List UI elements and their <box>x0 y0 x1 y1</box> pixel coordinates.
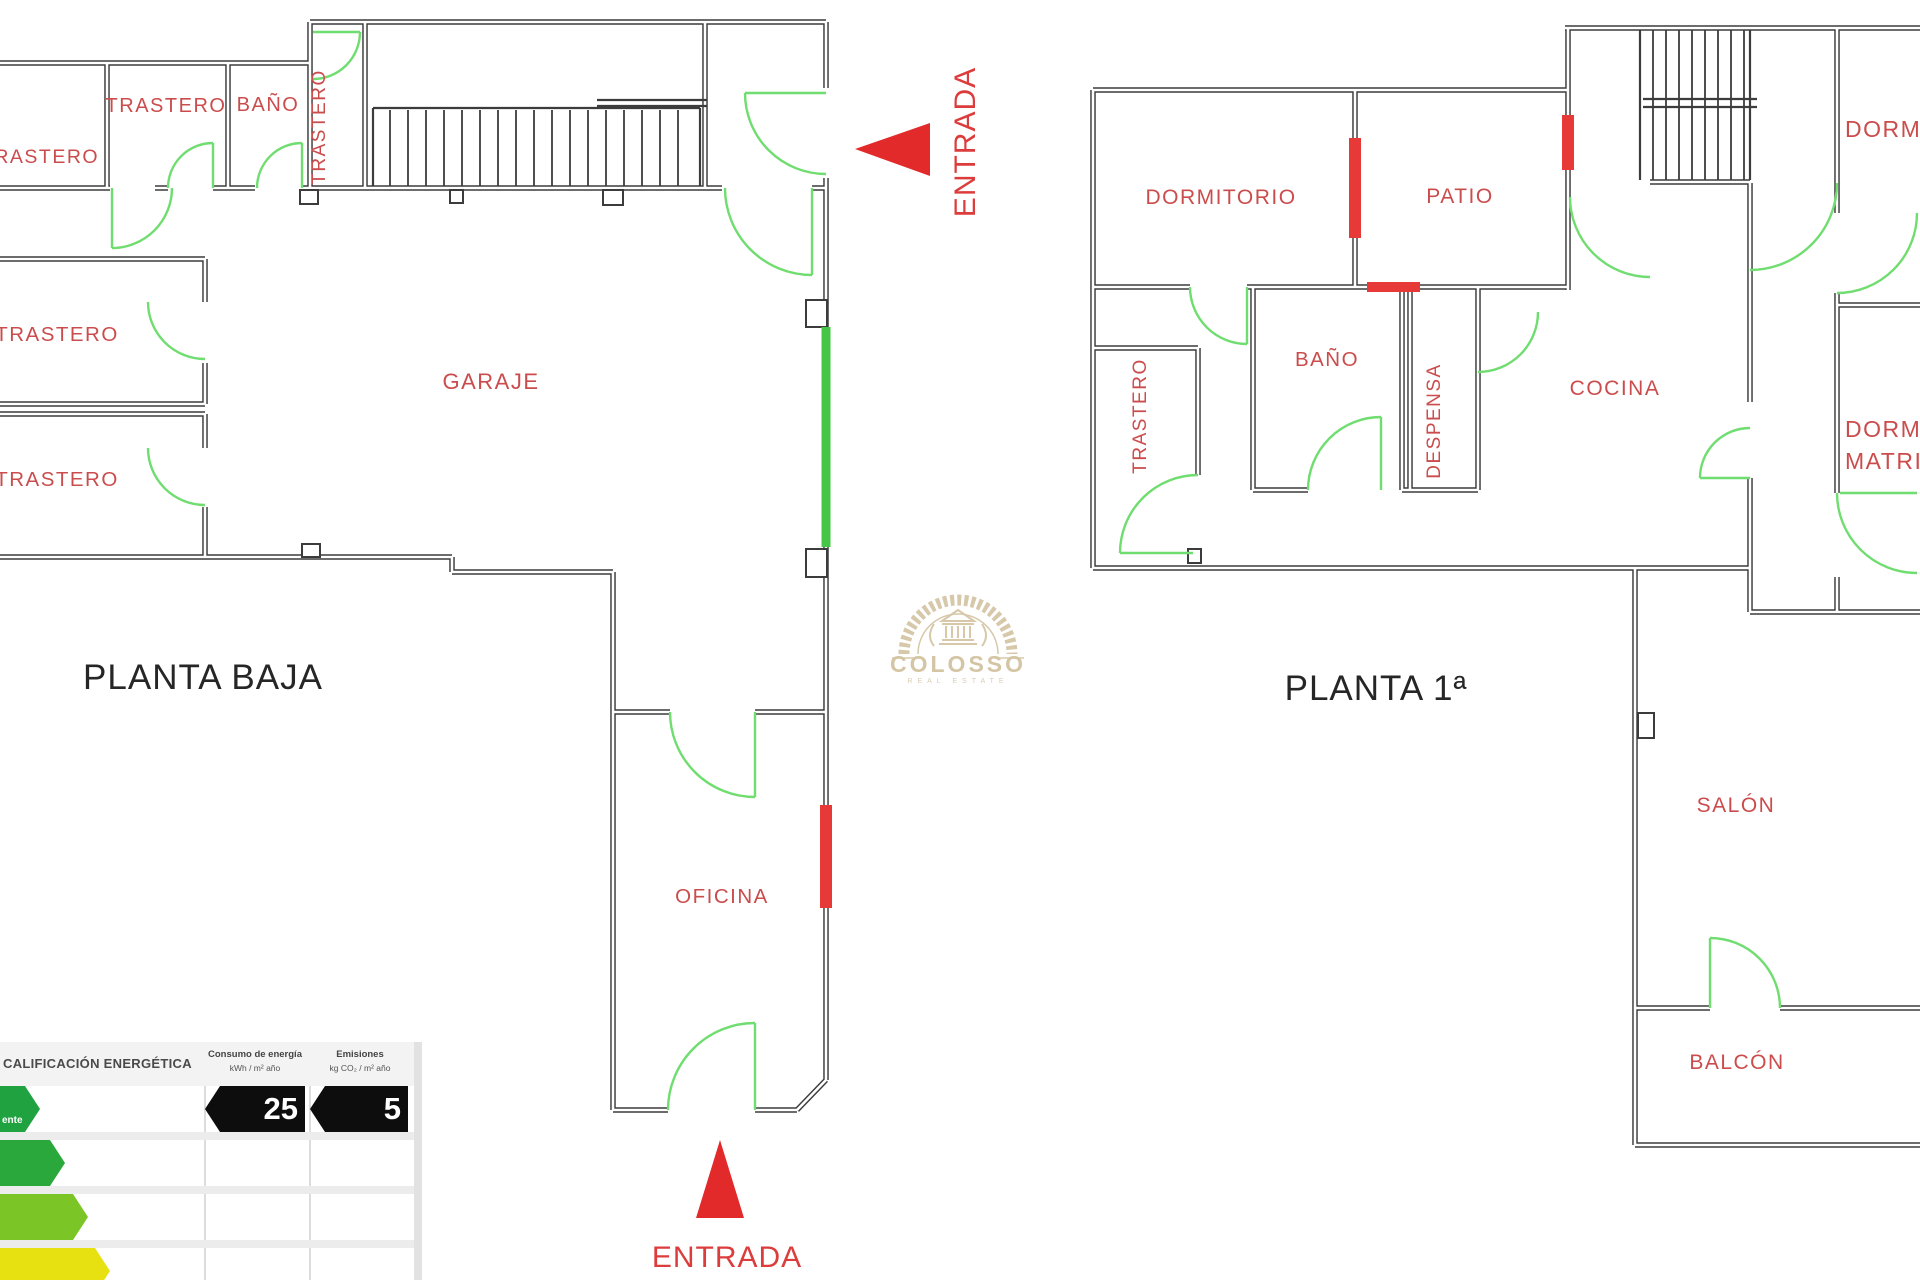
watermark-arch-icon <box>892 600 1024 658</box>
room-label-patio: PATIO <box>1426 185 1493 208</box>
room-label-trastero-mid: TRASTERO <box>0 323 119 346</box>
watermark-tagline: REAL ESTATE <box>907 678 1008 685</box>
room-label-trastero-top: TRASTERO <box>106 95 227 117</box>
energy-row-d <box>0 1248 414 1280</box>
energy-certificate: CALIFICACIÓN ENERGÉTICA Consumo de energ… <box>0 1042 422 1280</box>
room-label-dorm-matri-2: MATRI <box>1845 448 1920 474</box>
energy-emisiones-header-line2: kg CO₂ / m² año <box>308 1062 412 1075</box>
room-label-cocina: COCINA <box>1570 377 1661 400</box>
rating-label-fragment: ente <box>2 1115 23 1126</box>
planta-baja-walls <box>0 22 826 1110</box>
energy-row-c <box>0 1194 414 1240</box>
planta-primera-title: PLANTA 1ª <box>1285 669 1468 708</box>
room-label-bano-pb: BAÑO <box>237 92 300 116</box>
room-label-bano-p1: BAÑO <box>1295 348 1359 371</box>
energy-header: CALIFICACIÓN ENERGÉTICA Consumo de energ… <box>0 1042 414 1086</box>
room-label-dorm-matri-1: DORM <box>1845 416 1920 442</box>
colosso-watermark: COLOSSO REAL ESTATE <box>890 594 1030 686</box>
planta-primera-wall-stubs <box>1188 549 1654 738</box>
room-label-garaje: GARAJE <box>442 369 539 394</box>
energy-emisiones-header: Emisiones kg CO₂ / m² año <box>308 1048 412 1075</box>
energy-title: CALIFICACIÓN ENERGÉTICA <box>3 1056 192 1071</box>
room-label-despensa: DESPENSA <box>1424 363 1445 478</box>
room-label-trastero-vertical: TRASTERO <box>309 69 330 184</box>
room-label-trastero-low: TRASTERO <box>0 468 119 491</box>
room-label-dorm-cut: DORM <box>1845 116 1920 142</box>
energy-row-b <box>0 1140 414 1186</box>
energy-emisiones-header-line1: Emisiones <box>308 1048 412 1062</box>
oficina-window <box>820 805 832 908</box>
planta-primera-doors <box>1120 183 1917 1008</box>
planta-baja-stairs <box>373 100 707 186</box>
planta-primera-stairs <box>1640 30 1757 180</box>
room-label-trastero-p1: TRASTERO <box>1130 358 1151 473</box>
energy-consumo-header-line2: kWh / m² año <box>203 1062 307 1075</box>
rating-arrow-a-icon: ente <box>0 1086 40 1132</box>
entrada-bottom-triangle-icon <box>696 1140 744 1218</box>
energy-right-band <box>414 1042 422 1280</box>
entrada-bottom-label: ENTRADA <box>652 1241 802 1274</box>
energy-consumo-header-line1: Consumo de energía <box>203 1048 307 1062</box>
room-label-oficina: OFICINA <box>675 885 769 908</box>
room-label-balcon: BALCÓN <box>1689 1051 1784 1074</box>
room-label-trastero-top-left: TRASTERO <box>0 146 99 168</box>
rating-arrow-c-icon <box>0 1194 88 1240</box>
emisiones-value-tag: 5 <box>310 1086 408 1132</box>
planta-baja-title: PLANTA BAJA <box>83 658 323 697</box>
energy-row-a: ente 25 5 <box>0 1086 414 1132</box>
rating-arrow-d-icon <box>0 1248 110 1280</box>
consumo-value-tag: 25 <box>205 1086 305 1132</box>
planta-primera-plan: DORMITORIO PATIO BAÑO TRASTERO DESPENSA … <box>1093 28 1920 1145</box>
entrada-right-triangle-icon <box>855 123 930 176</box>
rating-arrow-b-icon <box>0 1140 65 1186</box>
entrada-right-label: ENTRADA <box>949 67 982 217</box>
planta-primera-labels: DORMITORIO PATIO BAÑO TRASTERO DESPENSA … <box>1130 116 1920 1074</box>
floorplan-page: TRASTERO TRASTERO BAÑO TRASTERO TRASTERO… <box>0 0 1920 1280</box>
room-label-dormitorio: DORMITORIO <box>1145 186 1296 209</box>
watermark-name: COLOSSO <box>890 651 1026 677</box>
energy-consumo-header: Consumo de energía kWh / m² año <box>203 1048 307 1075</box>
room-label-salon: SALÓN <box>1697 794 1776 817</box>
